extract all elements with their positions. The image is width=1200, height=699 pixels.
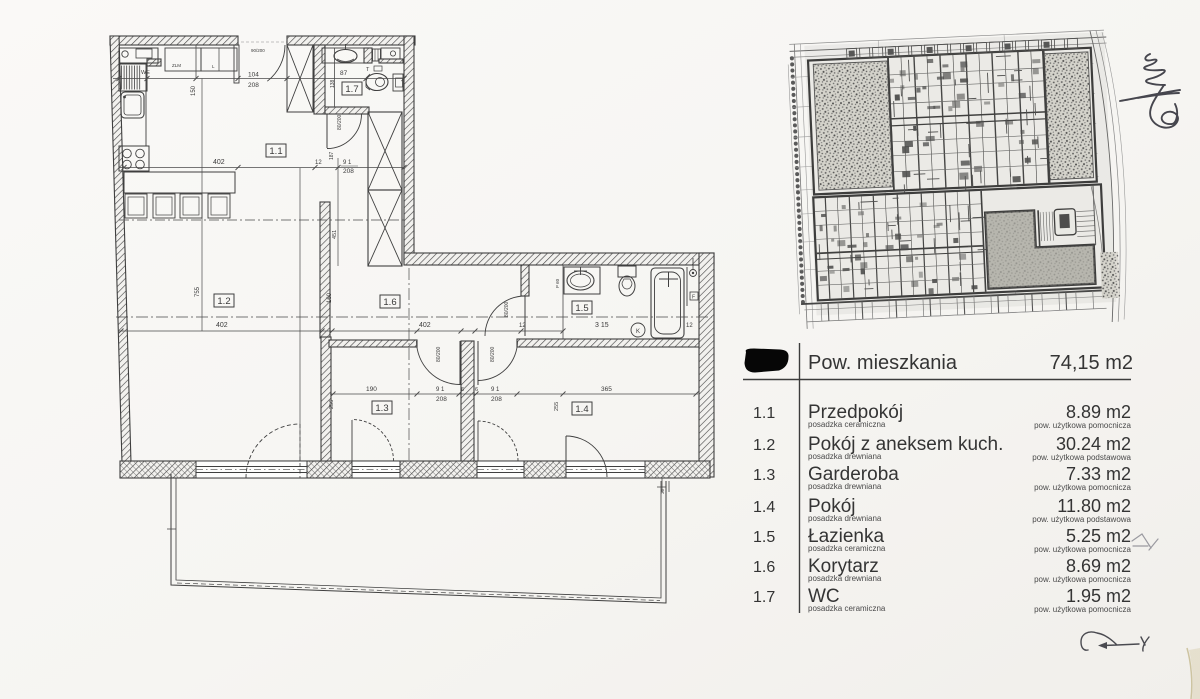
svg-text:80/200: 80/200	[490, 346, 496, 362]
svg-text:30.24 m2: 30.24 m2	[1056, 434, 1131, 454]
svg-text:208: 208	[343, 168, 354, 175]
svg-text:80/200: 80/200	[337, 114, 343, 130]
svg-text:6: 6	[461, 387, 464, 393]
svg-text:1.4: 1.4	[753, 499, 775, 516]
svg-text:190: 190	[366, 386, 377, 393]
svg-text:K: K	[636, 329, 640, 335]
svg-text:150: 150	[191, 85, 197, 96]
svg-text:3 15: 3 15	[595, 322, 609, 329]
svg-text:pow. użytkowa pomocnicza: pow. użytkowa pomocnicza	[1034, 545, 1131, 554]
svg-text:F: F	[692, 295, 695, 301]
svg-text:402: 402	[216, 322, 228, 329]
svg-text:451: 451	[332, 230, 338, 239]
svg-text:pow. użytkowa pomocnicza: pow. użytkowa pomocnicza	[1034, 605, 1131, 614]
svg-text:160: 160	[327, 292, 333, 303]
svg-text:9 1: 9 1	[491, 387, 500, 393]
svg-text:11.80 m2: 11.80 m2	[1057, 496, 1131, 516]
svg-text:posadzka drewniana: posadzka drewniana	[808, 574, 882, 583]
svg-text:9 1: 9 1	[436, 387, 445, 393]
svg-text:12: 12	[315, 160, 322, 166]
svg-text:1.5: 1.5	[753, 529, 775, 546]
svg-text:1.4: 1.4	[575, 404, 588, 415]
svg-text:1.7: 1.7	[753, 589, 775, 606]
svg-text:87: 87	[340, 70, 348, 77]
svg-text:1.5: 1.5	[575, 303, 588, 314]
svg-text:12: 12	[686, 323, 693, 329]
svg-text:pow. użytkowa pomocnicza: pow. użytkowa pomocnicza	[1034, 421, 1131, 430]
svg-text:1.6: 1.6	[383, 297, 396, 308]
svg-text:1.3: 1.3	[753, 467, 775, 484]
svg-text:755: 755	[195, 286, 201, 297]
svg-text:pow. użytkowa podstawowa: pow. użytkowa podstawowa	[1032, 515, 1131, 524]
svg-text:138: 138	[330, 79, 336, 88]
svg-text:74,15 m2: 74,15 m2	[1050, 352, 1133, 374]
svg-text:255: 255	[554, 402, 560, 411]
svg-text:80/200: 80/200	[436, 346, 442, 362]
svg-text:36: 36	[660, 488, 665, 494]
svg-text:208: 208	[436, 396, 447, 403]
svg-text:1.1: 1.1	[753, 405, 775, 422]
svg-text:1.6: 1.6	[753, 559, 775, 576]
svg-text:208: 208	[491, 396, 502, 403]
svg-text:208: 208	[248, 82, 259, 89]
svg-text:365: 365	[601, 386, 612, 393]
svg-text:1.1: 1.1	[269, 146, 282, 157]
svg-text:1.95 m2: 1.95 m2	[1066, 586, 1131, 606]
svg-text:5.25 m2: 5.25 m2	[1066, 526, 1131, 546]
svg-text:Pow. mieszkania: Pow. mieszkania	[808, 352, 958, 374]
svg-text:8.89 m2: 8.89 m2	[1066, 402, 1131, 422]
svg-text:1.2: 1.2	[753, 437, 775, 454]
svg-text:9 1: 9 1	[343, 160, 352, 166]
svg-text:pow. użytkowa pomocnicza: pow. użytkowa pomocnicza	[1034, 575, 1131, 584]
svg-text:6: 6	[475, 387, 478, 393]
svg-text:7.33 m2: 7.33 m2	[1066, 464, 1131, 484]
svg-text:1.3: 1.3	[375, 403, 388, 414]
svg-text:90/200: 90/200	[251, 48, 265, 53]
svg-text:pow. użytkowa podstawowa: pow. użytkowa podstawowa	[1032, 453, 1131, 462]
svg-text:1.7: 1.7	[345, 84, 358, 95]
svg-text:104: 104	[248, 72, 259, 79]
svg-text:posadzka ceramiczna: posadzka ceramiczna	[808, 420, 886, 429]
svg-text:posadzka ceramiczna: posadzka ceramiczna	[808, 544, 886, 553]
svg-text:80/200: 80/200	[504, 301, 510, 317]
svg-text:1.2: 1.2	[217, 296, 230, 307]
svg-text:402: 402	[213, 159, 225, 166]
svg-text:12: 12	[519, 323, 526, 329]
svg-text:pow. użytkowa pomocnicza: pow. użytkowa pomocnicza	[1034, 483, 1131, 492]
svg-text:posadzka drewniana: posadzka drewniana	[808, 514, 882, 523]
svg-text:187: 187	[329, 151, 335, 160]
svg-text:8.69 m2: 8.69 m2	[1066, 556, 1131, 576]
svg-text:ZLM: ZLM	[172, 63, 181, 68]
svg-text:402: 402	[419, 322, 431, 329]
svg-text:P 60: P 60	[555, 278, 560, 288]
svg-text:posadzka drewniana: posadzka drewniana	[808, 482, 882, 491]
svg-text:posadzka drewniana: posadzka drewniana	[808, 452, 882, 461]
svg-text:256: 256	[329, 400, 335, 409]
svg-text:posadzka ceramiczna: posadzka ceramiczna	[808, 604, 886, 613]
